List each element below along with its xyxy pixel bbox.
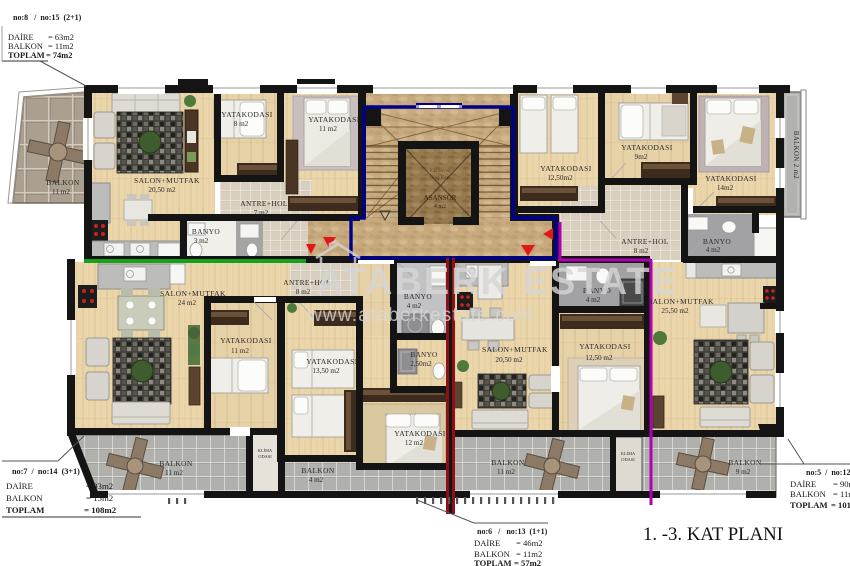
svg-text:7 m2: 7 m2 <box>254 209 269 217</box>
svg-text:8 m2: 8 m2 <box>234 120 249 128</box>
svg-text:TOPLAM: TOPLAM <box>6 505 45 515</box>
svg-text:YATAKODASI: YATAKODASI <box>621 143 673 152</box>
svg-text:KLİMA: KLİMA <box>621 451 636 456</box>
svg-text:KLİMA: KLİMA <box>258 448 273 453</box>
svg-text:YATAKODASI: YATAKODASI <box>221 110 273 119</box>
svg-text:BALKON: BALKON <box>6 493 43 503</box>
svg-text:20,50 m2: 20,50 m2 <box>495 356 523 364</box>
svg-text:ANTRE+HOL: ANTRE+HOL <box>240 199 288 208</box>
svg-text:DAİRE: DAİRE <box>474 538 500 548</box>
svg-text:ASANSÖR: ASANSÖR <box>424 194 457 202</box>
svg-text:BANYO: BANYO <box>703 237 732 246</box>
svg-text:TOPLAM: TOPLAM <box>474 558 512 566</box>
svg-text:12 m2: 12 m2 <box>405 439 424 447</box>
svg-text:11 m2: 11 m2 <box>231 347 249 355</box>
svg-text:= 90m: = 90m <box>833 479 850 489</box>
svg-text:= 93m2: = 93m2 <box>86 481 113 491</box>
svg-text:no:5 / no:12: no:5 / no:12 <box>806 468 850 477</box>
svg-text:no:8 / no:15 (2+1): no:8 / no:15 (2+1) <box>13 13 82 22</box>
svg-text:9m2: 9m2 <box>635 153 648 161</box>
svg-text:ODASI: ODASI <box>258 454 272 459</box>
svg-text:YATAKODASI: YATAKODASI <box>306 357 358 366</box>
svg-text:SALON+MUTFAK: SALON+MUTFAK <box>482 345 548 354</box>
svg-text:= 74m2: = 74m2 <box>46 51 72 60</box>
svg-text:BALKON: BALKON <box>8 42 43 51</box>
svg-text:SALON+MUTFAK: SALON+MUTFAK <box>134 176 200 185</box>
svg-text:11 m2: 11 m2 <box>497 468 515 476</box>
svg-text:BALKON 2 m2: BALKON 2 m2 <box>792 131 799 179</box>
svg-text:BALKON: BALKON <box>159 459 192 468</box>
svg-text:Kat Sayısı: Kat Sayısı <box>430 169 451 174</box>
svg-text:14m2: 14m2 <box>717 184 734 192</box>
svg-text:11 m2: 11 m2 <box>319 125 337 133</box>
svg-text:= 57m2: = 57m2 <box>514 558 541 566</box>
svg-text:BANYO: BANYO <box>192 227 221 236</box>
svg-text:no:6 / no:13 (1+1): no:6 / no:13 (1+1) <box>477 527 548 536</box>
svg-text:YATAKODASI: YATAKODASI <box>705 174 757 183</box>
svg-text:ANTRE+HOL: ANTRE+HOL <box>621 237 669 246</box>
svg-text:12,50 m2: 12,50 m2 <box>585 354 613 362</box>
svg-text:25,50 m2: 25,50 m2 <box>661 307 689 315</box>
svg-text:4 m2: 4 m2 <box>434 204 446 210</box>
svg-text:3 m2: 3 m2 <box>194 237 209 245</box>
svg-text:BANYO: BANYO <box>410 351 437 359</box>
svg-text:12,50m2: 12,50m2 <box>547 174 573 182</box>
svg-text:11 m2: 11 m2 <box>52 188 70 196</box>
svg-text:8 m2: 8 m2 <box>296 288 311 296</box>
svg-text:24 m2: 24 m2 <box>178 299 197 307</box>
svg-text:11 m2: 11 m2 <box>165 469 183 477</box>
svg-text:YATAKODASI: YATAKODASI <box>220 336 272 345</box>
svg-text:1. -3. KAT PLANI: 1. -3. KAT PLANI <box>643 524 783 545</box>
svg-text:www.ataberkestate.com: www.ataberkestate.com <box>307 305 535 326</box>
svg-text:Giriş Kapı: Giriş Kapı <box>430 176 452 181</box>
svg-text:ATABERK ESTATE: ATABERK ESTATE <box>316 261 679 303</box>
svg-text:4 m2: 4 m2 <box>706 246 721 254</box>
svg-text:ODASI: ODASI <box>621 457 635 462</box>
svg-text:YATAKODASI: YATAKODASI <box>394 429 446 438</box>
svg-text:13,50 m2: 13,50 m2 <box>312 367 340 375</box>
svg-text:= 11m: = 11m <box>833 489 850 499</box>
svg-text:YATAKODASI: YATAKODASI <box>579 342 631 351</box>
svg-text:SALON+MUTFAK: SALON+MUTFAK <box>160 289 226 298</box>
svg-text:DAİRE: DAİRE <box>6 481 33 491</box>
svg-text:YATAKODASI: YATAKODASI <box>308 115 360 124</box>
svg-text:= 101: = 101 <box>831 500 850 510</box>
svg-text:BALKON: BALKON <box>790 489 827 499</box>
svg-text:BALKON: BALKON <box>728 458 761 467</box>
svg-text:= 11m2: = 11m2 <box>48 42 74 51</box>
svg-text:no:7 / no:14 (3+1): no:7 / no:14 (3+1) <box>12 467 80 476</box>
svg-text:= 15m2: = 15m2 <box>86 493 113 503</box>
svg-text:= 46m2: = 46m2 <box>516 538 543 548</box>
svg-text:BALKON: BALKON <box>301 466 334 475</box>
svg-text:20,50 m2: 20,50 m2 <box>148 186 176 194</box>
svg-text:9 m2: 9 m2 <box>736 468 751 476</box>
svg-text:4 m2: 4 m2 <box>309 476 324 484</box>
svg-text:2,50m2: 2,50m2 <box>410 360 432 368</box>
svg-text:TOPLAM: TOPLAM <box>790 500 828 510</box>
svg-text:YATAKODASI: YATAKODASI <box>540 164 592 173</box>
svg-text:8 m2: 8 m2 <box>634 247 649 255</box>
svg-text:DAİRE: DAİRE <box>790 479 816 489</box>
svg-text:TOPLAM: TOPLAM <box>8 51 45 60</box>
svg-text:BALKON: BALKON <box>46 178 79 187</box>
svg-text:DAİRE: DAİRE <box>8 33 34 42</box>
svg-text:= 63m2: = 63m2 <box>48 33 74 42</box>
svg-text:BALKON: BALKON <box>491 458 524 467</box>
svg-text:= 108m2: = 108m2 <box>84 505 117 515</box>
